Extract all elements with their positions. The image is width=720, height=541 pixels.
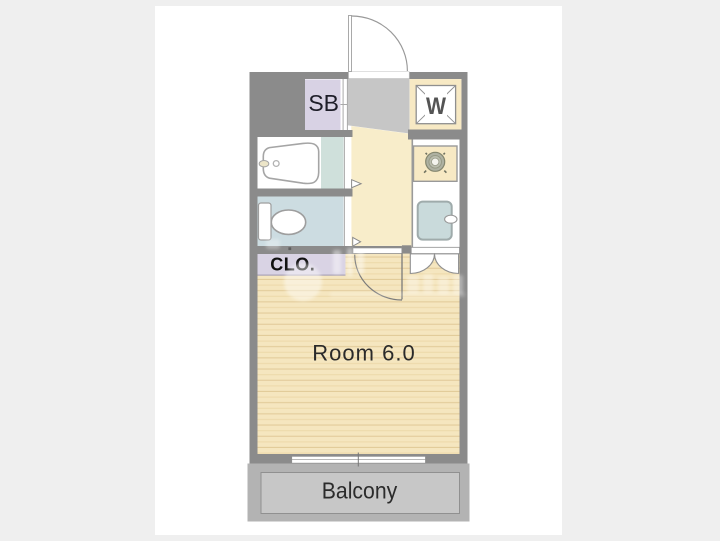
svg-text:Room 6.0: Room 6.0 [312, 341, 415, 366]
svg-text:W: W [426, 93, 446, 120]
svg-text:SB: SB [308, 90, 339, 116]
svg-text:Balcony: Balcony [322, 477, 398, 503]
